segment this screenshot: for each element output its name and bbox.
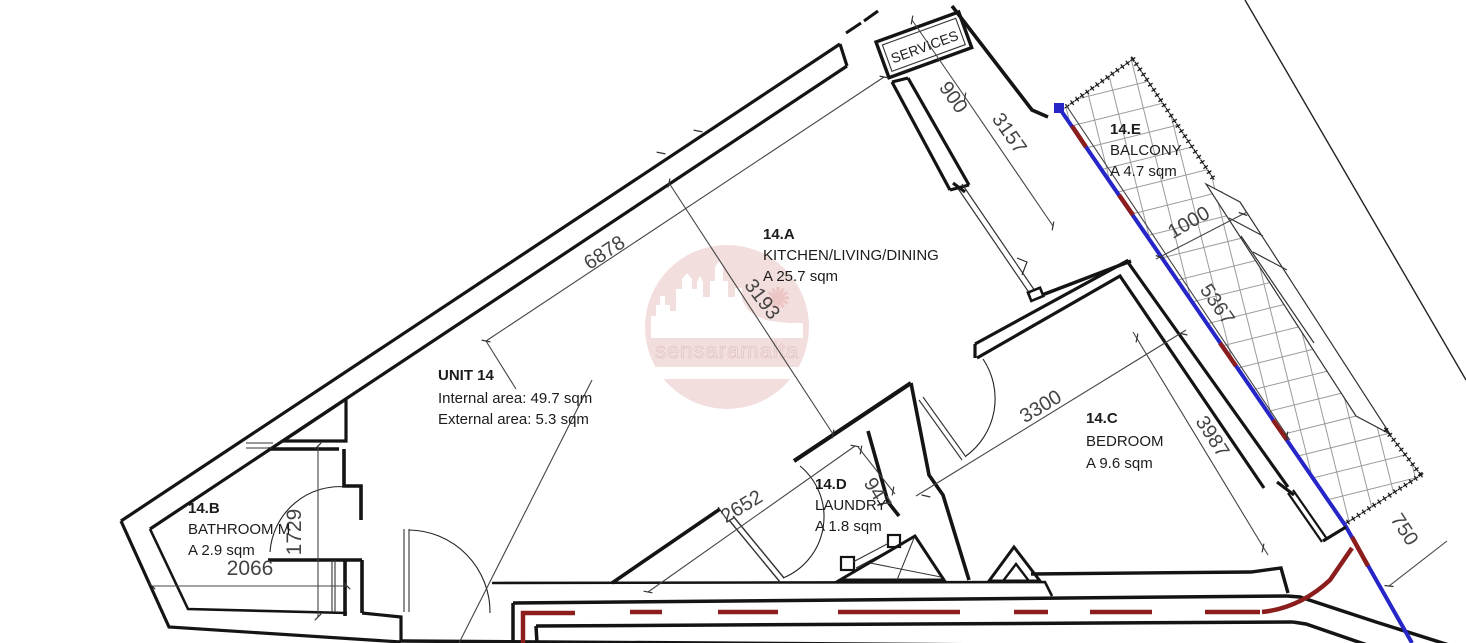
svg-text:14.C: 14.C [1086, 410, 1118, 427]
svg-text:3300: 3300 [1016, 386, 1065, 428]
svg-text:2652: 2652 [717, 486, 766, 528]
svg-text:3157: 3157 [987, 109, 1031, 158]
svg-text:2066: 2066 [227, 557, 274, 580]
svg-text:14.A: 14.A [763, 226, 795, 243]
svg-text:KITCHEN/LIVING/DINING: KITCHEN/LIVING/DINING [763, 247, 939, 264]
svg-text:BATHROOM M: BATHROOM M [188, 521, 290, 538]
svg-text:14.E: 14.E [1110, 121, 1141, 138]
svg-text:BALCONY: BALCONY [1110, 142, 1182, 159]
svg-text:14.B: 14.B [188, 500, 220, 517]
svg-text:3987: 3987 [1191, 412, 1234, 461]
svg-text:Internal area: 49.7 sqm: Internal area: 49.7 sqm [438, 390, 592, 407]
svg-text:sensaramalta: sensaramalta [655, 338, 799, 363]
svg-text:A 25.7 sqm: A 25.7 sqm [763, 268, 838, 285]
svg-text:5367: 5367 [1195, 280, 1239, 329]
svg-text:750: 750 [1386, 510, 1423, 550]
svg-text:A 1.8 sqm: A 1.8 sqm [815, 518, 882, 535]
svg-text:A 4.7 sqm: A 4.7 sqm [1110, 163, 1177, 180]
svg-text:LAUNDRY: LAUNDRY [815, 497, 886, 514]
svg-text:A 2.9 sqm: A 2.9 sqm [188, 542, 255, 559]
svg-text:1000: 1000 [1164, 202, 1214, 243]
svg-text:14.D: 14.D [815, 476, 847, 493]
svg-text:UNIT 14: UNIT 14 [438, 367, 495, 384]
svg-text:A 9.6 sqm: A 9.6 sqm [1086, 455, 1153, 472]
svg-text:BEDROOM: BEDROOM [1086, 433, 1164, 450]
svg-text:External area: 5.3 sqm: External area: 5.3 sqm [438, 411, 589, 428]
